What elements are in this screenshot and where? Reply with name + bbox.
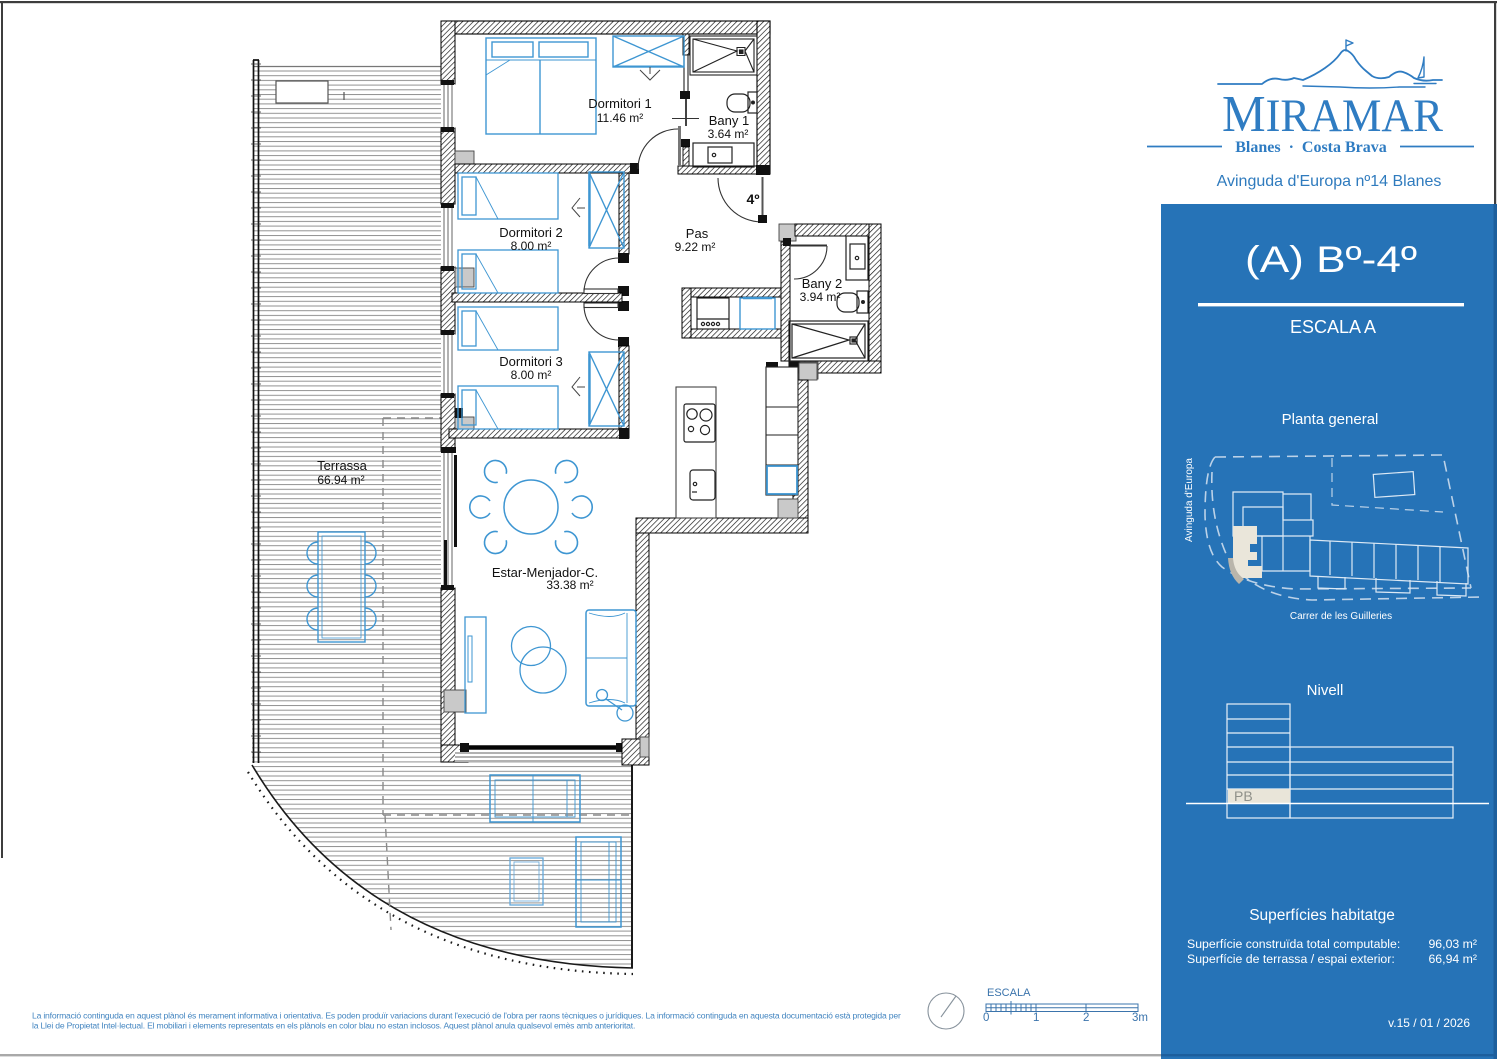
- svg-text:la Llei de Propietat Intel·lec: la Llei de Propietat Intel·lectual. El m…: [32, 1021, 635, 1031]
- svg-text:Superfície de terrassa / espai: Superfície de terrassa / espai exterior:: [1187, 952, 1395, 966]
- svg-text:8.00 m²: 8.00 m²: [511, 239, 552, 253]
- svg-text:Dormitori 2: Dormitori 2: [499, 225, 563, 240]
- svg-text:Superfície construïda total co: Superfície construïda total computable:: [1187, 937, 1400, 951]
- svg-text:MIRAMAR: MIRAMAR: [1222, 86, 1444, 143]
- svg-text:Pas: Pas: [686, 226, 709, 241]
- svg-text:Superfícies habitatge: Superfícies habitatge: [1249, 907, 1395, 924]
- svg-text:2: 2: [1083, 1012, 1089, 1024]
- svg-text:9.22 m²: 9.22 m²: [675, 240, 716, 254]
- svg-text:4º: 4º: [747, 191, 760, 207]
- svg-text:3m: 3m: [1132, 1012, 1148, 1024]
- svg-text:Nivell: Nivell: [1307, 682, 1344, 699]
- svg-text:33.38 m²: 33.38 m²: [546, 578, 593, 592]
- svg-text:Dormitori 1: Dormitori 1: [588, 96, 652, 111]
- svg-text:Bany 2: Bany 2: [802, 276, 842, 291]
- svg-text:ESCALA A: ESCALA A: [1290, 317, 1376, 337]
- svg-text:1: 1: [1033, 1012, 1039, 1024]
- svg-text:ESCALA: ESCALA: [987, 987, 1031, 999]
- svg-text:Carrer de les Guilleries: Carrer de les Guilleries: [1290, 611, 1392, 622]
- svg-text:v.15 / 01 / 2026: v.15 / 01 / 2026: [1388, 1016, 1470, 1030]
- svg-text:La informació continguda en aq: La informació continguda en aquest plàno…: [32, 1011, 901, 1021]
- svg-text:8.00 m²: 8.00 m²: [511, 368, 552, 382]
- svg-text:Terrassa: Terrassa: [317, 458, 368, 473]
- svg-text:3.64 m²: 3.64 m²: [708, 127, 749, 141]
- svg-text:Bany 1: Bany 1: [709, 113, 749, 128]
- svg-text:Avinguda d'Europa: Avinguda d'Europa: [1184, 458, 1195, 542]
- svg-text:0: 0: [983, 1012, 989, 1024]
- svg-text:66.94 m²: 66.94 m²: [317, 473, 364, 487]
- svg-text:Blanes · Costa Brava: Blanes · Costa Brava: [1235, 139, 1387, 156]
- svg-text:11.46 m²: 11.46 m²: [597, 111, 643, 125]
- svg-text:Dormitori 3: Dormitori 3: [499, 354, 563, 369]
- svg-text:Planta general: Planta general: [1282, 411, 1379, 428]
- svg-text:96,03 m²: 96,03 m²: [1428, 937, 1477, 951]
- svg-text:(A) Bº-4º: (A) Bº-4º: [1245, 239, 1418, 280]
- svg-text:66,94 m²: 66,94 m²: [1428, 952, 1477, 966]
- svg-text:Avinguda d'Europa nº14 Blanes: Avinguda d'Europa nº14 Blanes: [1217, 173, 1442, 190]
- svg-text:PB: PB: [1234, 788, 1253, 804]
- svg-text:3.94 m²: 3.94 m²: [800, 290, 841, 304]
